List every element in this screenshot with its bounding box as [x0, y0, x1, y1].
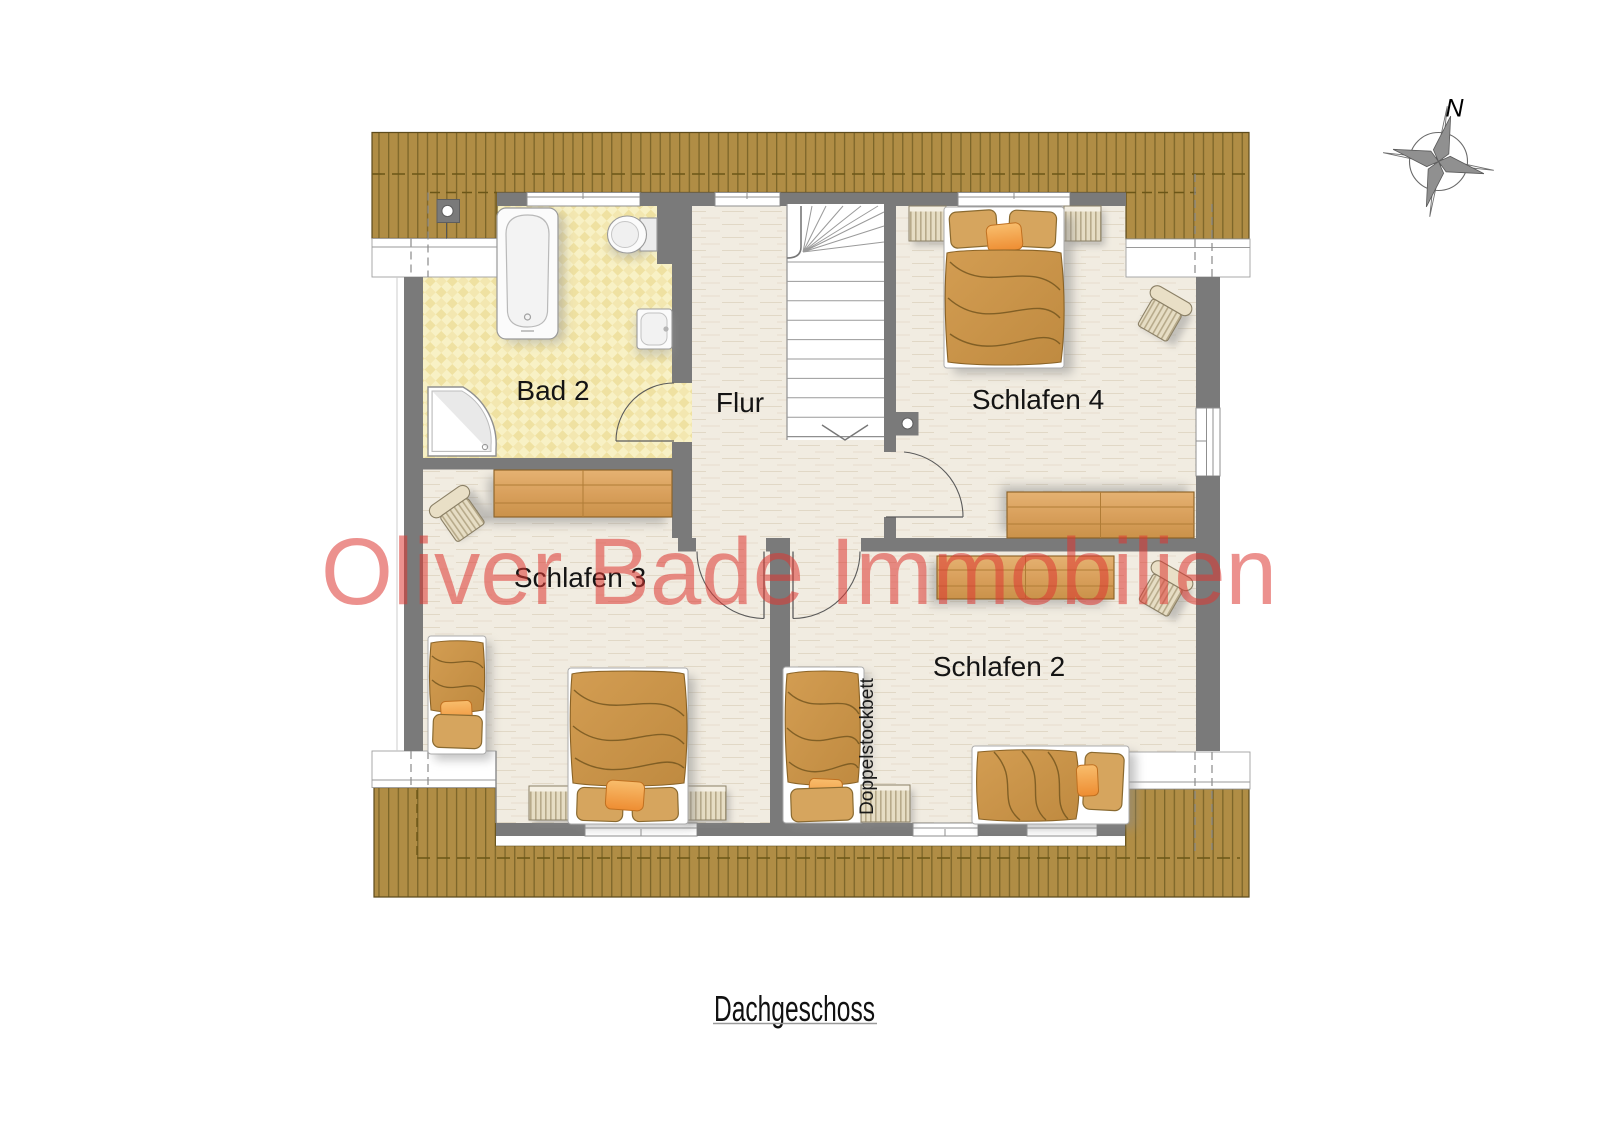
svg-text:Oliver Bade Immobilien: Oliver Bade Immobilien — [321, 519, 1277, 625]
svg-text:Bad 2: Bad 2 — [516, 375, 589, 406]
svg-text:Schlafen 2: Schlafen 2 — [933, 651, 1065, 682]
svg-text:Doppelstockbett: Doppelstockbett — [856, 677, 878, 815]
svg-text:Flur: Flur — [716, 387, 764, 418]
svg-text:N: N — [1446, 95, 1465, 123]
svg-text:Schlafen 4: Schlafen 4 — [972, 384, 1104, 415]
